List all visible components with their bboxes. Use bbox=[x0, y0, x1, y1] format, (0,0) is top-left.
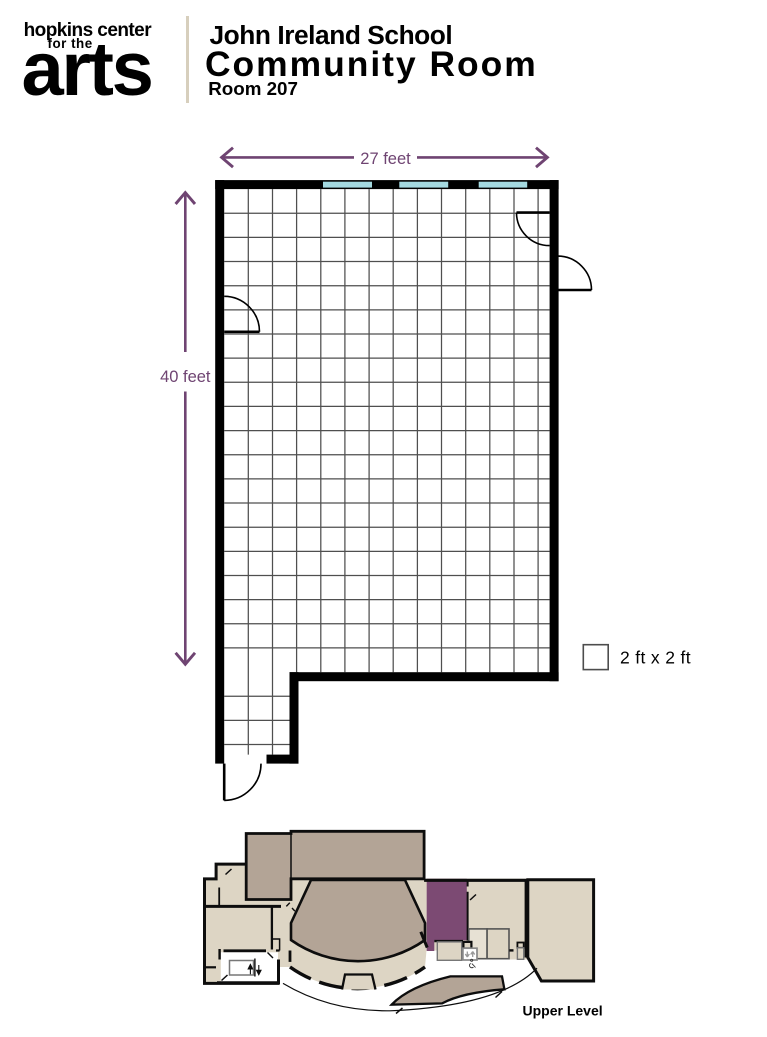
svg-text:40 feet: 40 feet bbox=[160, 368, 211, 386]
svg-text:Upper Level: Upper Level bbox=[523, 1003, 603, 1019]
svg-text:27 feet: 27 feet bbox=[360, 150, 411, 168]
svg-text:2 ft x 2 ft: 2 ft x 2 ft bbox=[620, 648, 691, 668]
